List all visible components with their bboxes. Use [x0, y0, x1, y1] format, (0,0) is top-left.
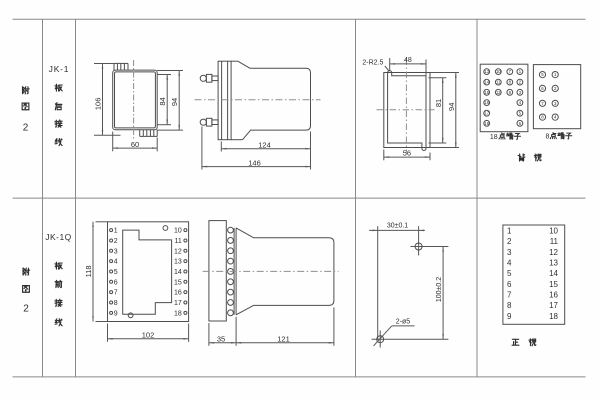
svg-text:94: 94: [447, 103, 456, 111]
svg-text:18: 18: [549, 312, 558, 321]
svg-text:1: 1: [507, 226, 512, 235]
svg-text:17: 17: [174, 300, 182, 307]
svg-text:JK-1: JK-1: [49, 64, 70, 74]
svg-text:106: 106: [94, 98, 103, 111]
svg-text:7: 7: [507, 291, 512, 300]
svg-text:15: 15: [174, 279, 182, 286]
svg-text:6: 6: [507, 280, 512, 289]
svg-text:12: 12: [549, 248, 558, 257]
svg-text:11: 11: [550, 237, 559, 246]
svg-text:2: 2: [507, 237, 512, 246]
svg-text:13: 13: [484, 69, 489, 74]
svg-text:48: 48: [404, 57, 412, 64]
svg-text:3: 3: [114, 248, 118, 255]
svg-text:8: 8: [545, 133, 549, 140]
svg-text:121: 121: [277, 335, 290, 344]
svg-text:17: 17: [484, 111, 489, 116]
svg-text:11: 11: [496, 80, 501, 85]
svg-text:17: 17: [549, 301, 558, 310]
svg-text:146: 146: [248, 158, 261, 167]
svg-text:11: 11: [175, 238, 182, 245]
svg-text:7: 7: [114, 290, 118, 297]
svg-text:5: 5: [507, 269, 512, 278]
svg-text:10: 10: [174, 228, 182, 235]
svg-text:9: 9: [114, 310, 118, 317]
svg-text:15: 15: [484, 90, 489, 95]
svg-text:8: 8: [507, 301, 512, 310]
svg-text:2: 2: [23, 123, 29, 134]
svg-text:2: 2: [114, 238, 118, 245]
svg-text:6: 6: [114, 279, 118, 286]
svg-text:118: 118: [84, 265, 93, 277]
svg-text:18: 18: [490, 134, 498, 141]
svg-text:13: 13: [174, 259, 182, 266]
svg-text:18: 18: [484, 121, 489, 126]
svg-text:16: 16: [549, 291, 558, 300]
svg-text:4: 4: [114, 259, 118, 266]
svg-text:100±0.2: 100±0.2: [436, 277, 443, 302]
svg-text:81: 81: [434, 99, 443, 107]
svg-text:14: 14: [174, 269, 182, 276]
svg-text:5: 5: [114, 269, 118, 276]
svg-text:13: 13: [549, 258, 558, 267]
svg-text:4: 4: [507, 258, 512, 267]
svg-text:16: 16: [484, 100, 489, 105]
svg-text:94: 94: [170, 98, 179, 106]
svg-text:10: 10: [549, 226, 558, 235]
svg-text:2-ø5: 2-ø5: [396, 318, 411, 325]
svg-text:1: 1: [114, 228, 118, 235]
svg-text:60: 60: [131, 140, 139, 149]
svg-text:15: 15: [549, 280, 558, 289]
svg-text:JK-1Q: JK-1Q: [45, 232, 72, 242]
svg-text:12: 12: [496, 90, 501, 95]
svg-text:30±0.1: 30±0.1: [387, 223, 408, 230]
svg-text:2: 2: [23, 304, 29, 315]
svg-text:84: 84: [158, 97, 167, 105]
svg-text:12: 12: [174, 248, 182, 255]
svg-text:14: 14: [549, 269, 558, 278]
svg-text:3: 3: [507, 248, 512, 257]
svg-text:2-R2.5: 2-R2.5: [362, 60, 383, 67]
svg-text:124: 124: [258, 141, 271, 150]
svg-text:9: 9: [507, 312, 512, 321]
svg-text:14: 14: [484, 80, 489, 85]
svg-text:102: 102: [142, 331, 155, 340]
svg-text:35: 35: [217, 335, 225, 344]
svg-text:18: 18: [174, 310, 182, 317]
svg-text:10: 10: [496, 69, 501, 74]
svg-text:16: 16: [174, 290, 182, 297]
svg-text:56: 56: [403, 149, 411, 158]
svg-text:8: 8: [114, 300, 118, 307]
